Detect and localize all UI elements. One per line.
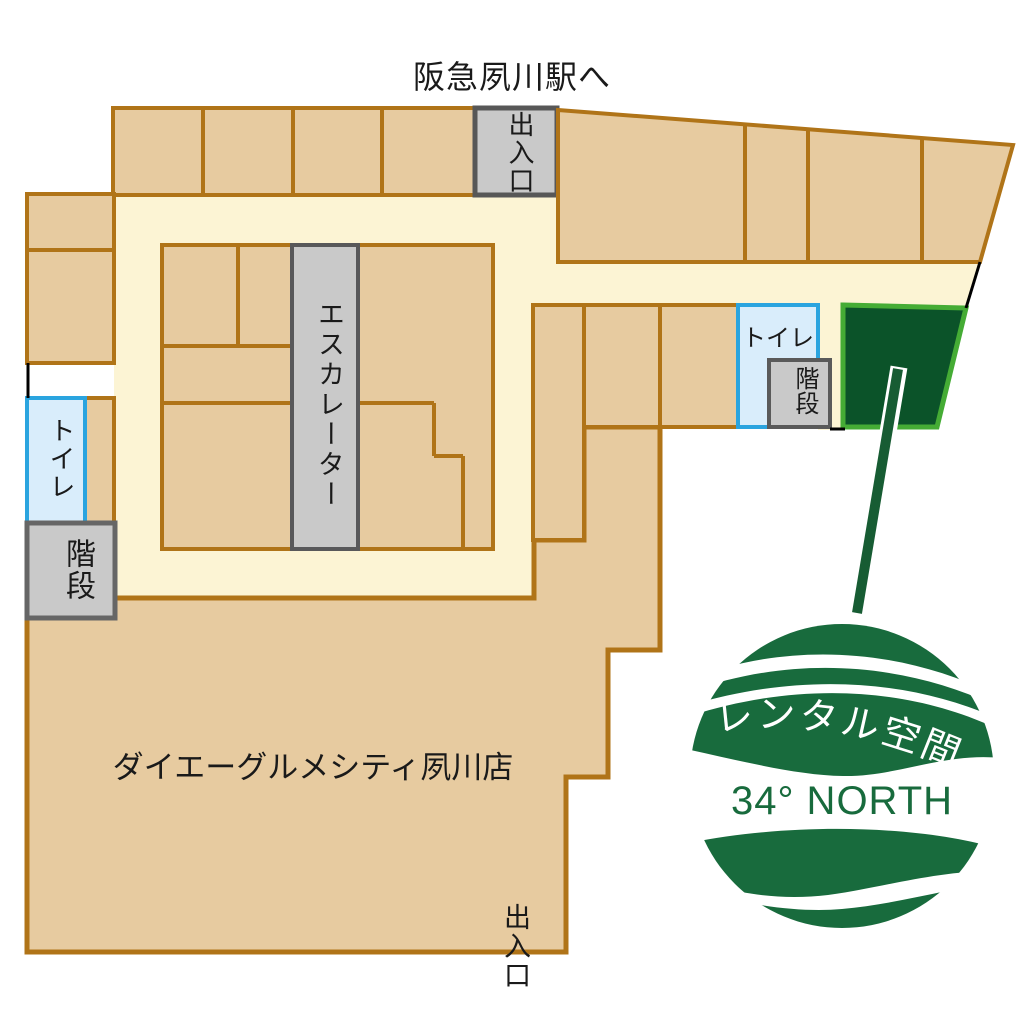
logo-bottom-band xyxy=(650,829,1014,897)
rental-space xyxy=(843,305,966,427)
escalator-label: エスカレーター xyxy=(310,300,349,510)
entrance-top-label: 出入口 xyxy=(502,111,539,195)
anchor-store-label: ダイエーグルメシティ夙川店 xyxy=(93,742,533,787)
entrance-bottom-label: 出入口 xyxy=(496,903,535,990)
toilet-left-label: トイレ xyxy=(43,417,80,501)
station-direction-label: 阪急夙川駅へ xyxy=(0,52,1024,98)
shop-row-top-right xyxy=(558,110,1013,262)
toilet-right-label: トイレ xyxy=(740,318,816,353)
stairs-right-label: 階段 xyxy=(787,366,822,416)
logo-name-text: 34° NORTH xyxy=(731,779,953,823)
logo-top-cap xyxy=(660,600,1010,702)
stairs-left-label: 階段 xyxy=(55,538,99,602)
logo: レンタル空間 34° NORTH xyxy=(650,600,1016,945)
floor-map-page: レンタル空間 34° NORTH 阪急夙川駅へ 出入口 エスカレーター トイレ … xyxy=(0,0,1024,1024)
